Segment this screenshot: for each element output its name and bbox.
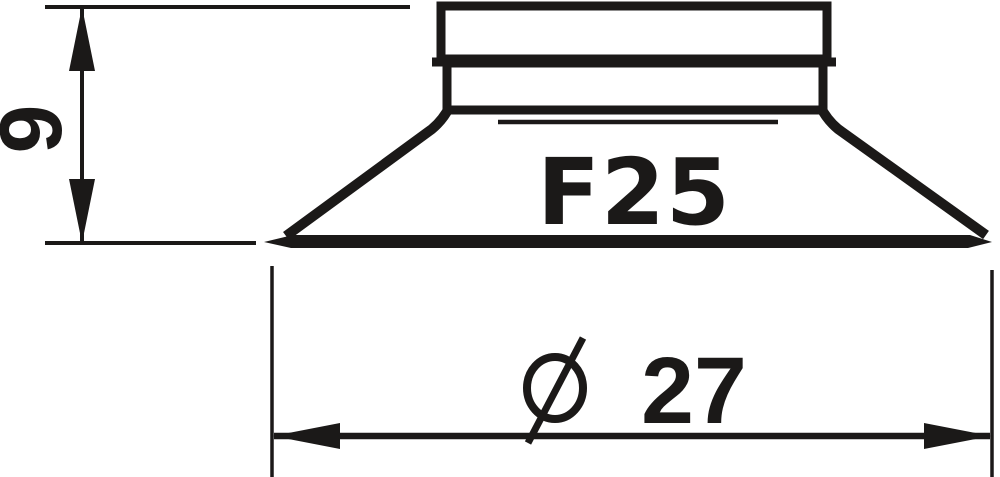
cup-fitting-outline bbox=[441, 6, 827, 59]
height-dimension-value: 9 bbox=[0, 105, 80, 154]
arrow-up-icon bbox=[69, 7, 95, 71]
cup-neck-outline bbox=[447, 63, 823, 110]
cup-left-slope bbox=[286, 106, 450, 236]
drawing-stage: F25 9 Ø 27 27 bbox=[0, 0, 1000, 477]
diameter-dimension-value: 27 bbox=[641, 338, 747, 444]
diameter-dimension: Ø 27 27 bbox=[272, 266, 992, 477]
arrow-left-icon bbox=[273, 423, 340, 449]
arrow-down-icon bbox=[69, 179, 95, 243]
technical-drawing-canvas: F25 9 Ø 27 27 bbox=[0, 0, 1000, 477]
suction-cup: F25 bbox=[264, 6, 992, 248]
diameter-symbol-icon bbox=[527, 338, 583, 443]
part-label: F25 bbox=[537, 139, 731, 246]
height-dimension: 9 bbox=[0, 7, 410, 243]
cup-right-slope bbox=[820, 106, 986, 235]
arrow-right-icon bbox=[924, 423, 991, 449]
